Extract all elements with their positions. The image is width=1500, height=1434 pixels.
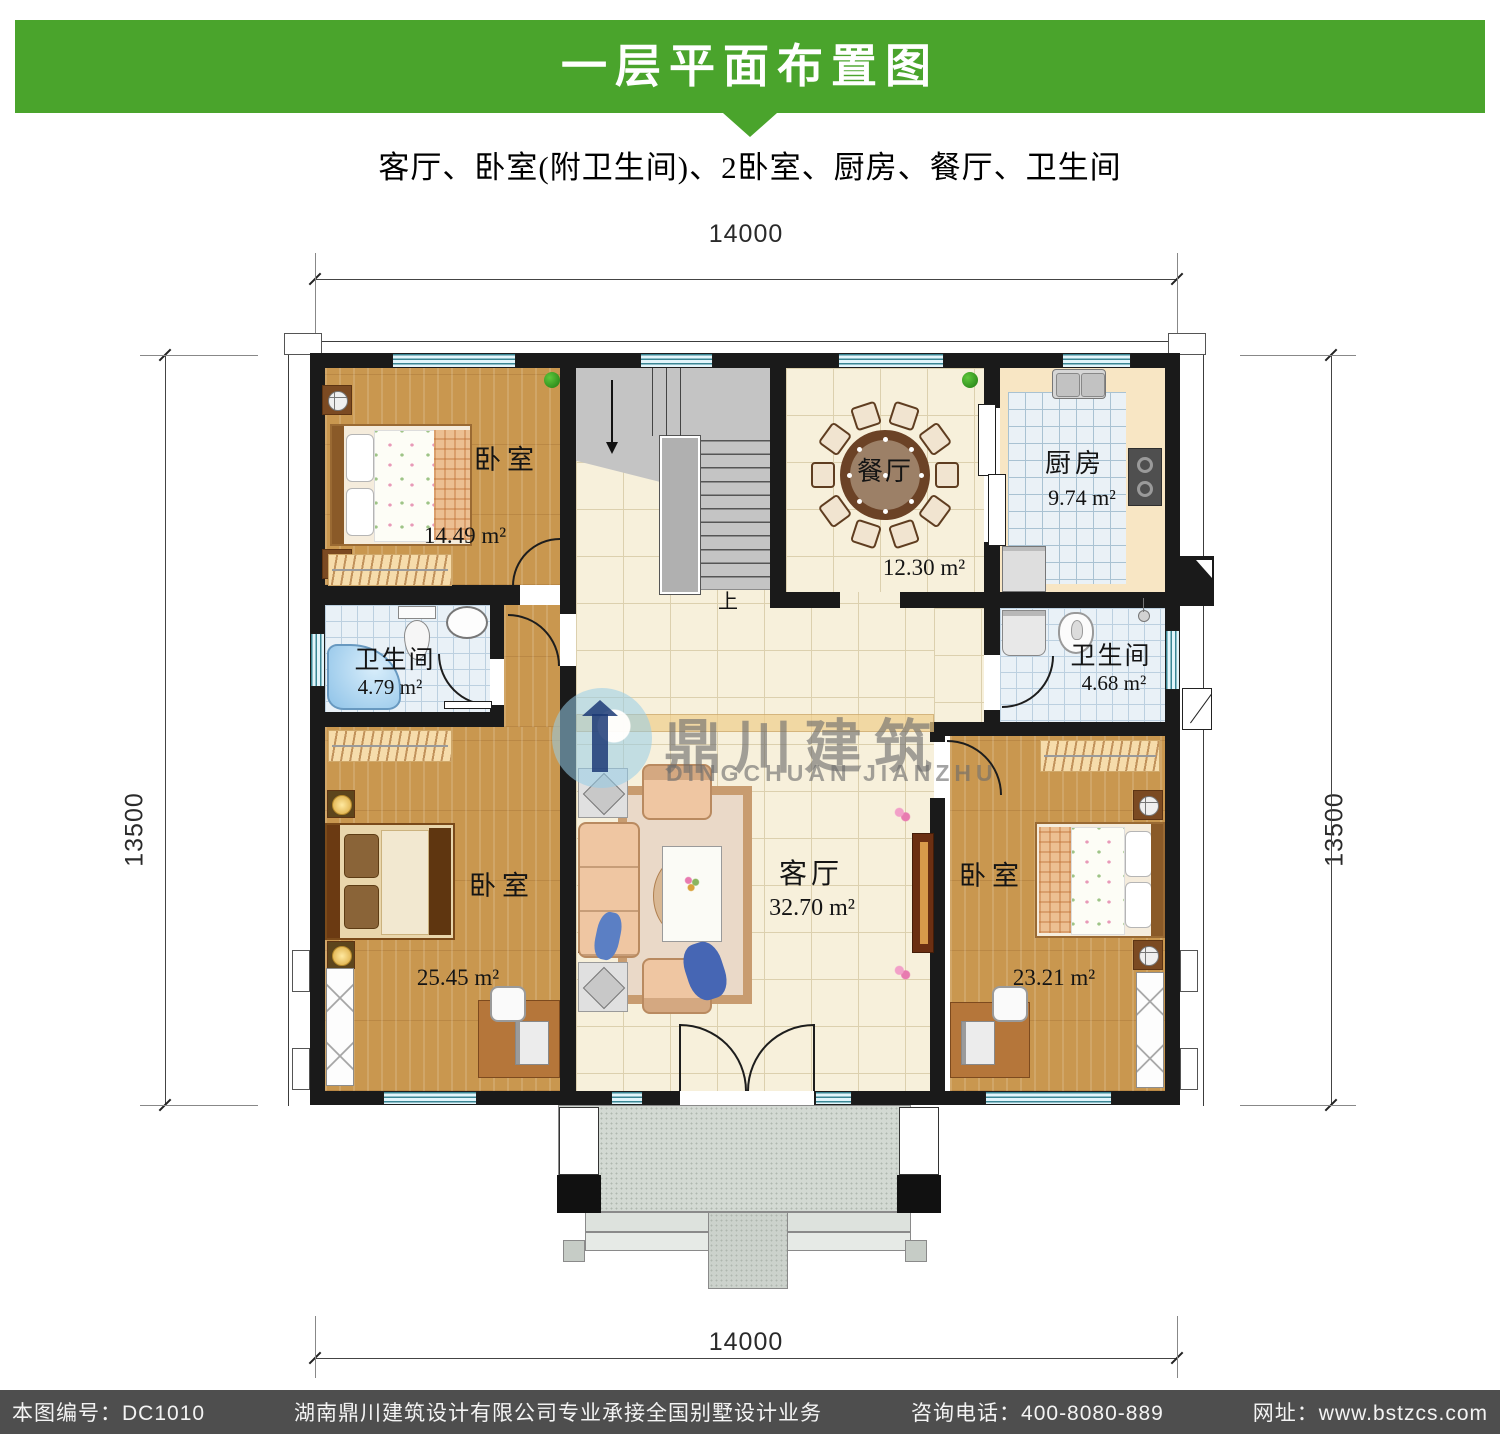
bed-pillow <box>1125 831 1152 877</box>
room-label-bathR: 卫生间 <box>1046 644 1176 670</box>
window-stairs <box>640 353 713 368</box>
burner-icon <box>1137 457 1153 473</box>
shower-head-icon <box>1138 610 1150 622</box>
stair-flight <box>700 440 771 590</box>
washing-machine <box>1002 610 1046 656</box>
squat-toilet-drain <box>1071 620 1083 640</box>
stair-void <box>660 436 700 594</box>
door-kitchen-slider-b <box>988 474 1006 546</box>
page-title: 一层平面布置图 <box>15 20 1485 113</box>
wall-v3-dining-kitchen-a <box>984 368 1000 408</box>
pilaster <box>1180 950 1198 992</box>
bed-pillow <box>1125 882 1152 928</box>
door-kitchen-slider-a <box>978 404 996 476</box>
wall-h1-bedroomTL <box>310 585 520 605</box>
dim-ext <box>1240 1105 1356 1106</box>
room-label-bedroomTL: 卧室 <box>447 446 567 474</box>
room-area-living: 32.70 m² <box>742 896 882 921</box>
room-area-bedroomBL: 25.45 m² <box>388 966 528 990</box>
stair-rail-line <box>680 368 681 436</box>
sink-basin <box>1056 373 1080 397</box>
dim-left-label: 13500 <box>121 750 150 910</box>
porch-column-foot-left <box>563 1240 585 1262</box>
pilaster <box>1168 333 1206 355</box>
dim-ext <box>315 1316 316 1378</box>
lamp-icon <box>332 946 352 966</box>
bed-bottom-right <box>1035 822 1165 938</box>
porch-column-left <box>559 1107 599 1175</box>
nightstand <box>1133 940 1163 970</box>
title-banner: 一层平面布置图 <box>15 20 1485 113</box>
stair-arrow-stem <box>611 380 613 442</box>
toilet-tank <box>398 606 436 619</box>
fridge <box>1002 546 1046 592</box>
nightstand-lamp <box>327 941 355 969</box>
rack-rail <box>332 569 448 571</box>
footer-phone: 咨询电话：400-8080-889 <box>911 1397 1164 1427</box>
wardrobe <box>326 968 354 1086</box>
dim-right-label: 13500 <box>1321 750 1350 910</box>
wall-stub-dining <box>770 592 840 608</box>
dim-ext <box>1240 355 1356 356</box>
porch-column-foot-right <box>905 1240 927 1262</box>
watermark-logo-column <box>592 714 608 772</box>
wall-exterior-right <box>1165 353 1180 1105</box>
dining-chair <box>935 462 959 488</box>
window-kitchen <box>1062 353 1131 368</box>
room-label-bedroomBR: 卧室 <box>932 862 1052 890</box>
footer-bar: 本图编号：DC1010 湖南鼎川建筑设计有限公司专业承接全国别墅设计业务 咨询电… <box>0 1390 1500 1434</box>
room-label-kitchen: 厨房 <box>1015 450 1135 477</box>
end-table <box>578 962 628 1012</box>
window-bedroomTL <box>392 353 516 368</box>
room-label-bedroomBL: 卧室 <box>442 872 562 900</box>
bed-pillow <box>346 488 374 536</box>
kitchen-sink <box>1052 369 1106 399</box>
footer-website: 网址：www.bstzcs.com <box>1253 1397 1488 1427</box>
end-table-top <box>583 967 625 1009</box>
stair-rail-line <box>666 368 667 436</box>
room-area-bathL: 4.79 m² <box>323 676 457 698</box>
nightstand-lamp <box>327 790 355 818</box>
plant-icon <box>962 372 978 388</box>
sink-oval <box>446 606 488 639</box>
wall-h4-bathR <box>930 722 1165 736</box>
rack-rail <box>1044 755 1156 757</box>
watermark-en: DINGCHUAN JIANZHU <box>666 760 998 787</box>
bed-blanket <box>381 830 429 935</box>
bed-headboard <box>1151 824 1163 936</box>
porch-column-right-base <box>897 1175 941 1213</box>
pilaster <box>292 1048 310 1090</box>
room-area-kitchen: 9.74 m² <box>1017 486 1147 509</box>
flower-icon <box>893 964 911 982</box>
stair-rail-line <box>652 368 653 436</box>
window-hall-right <box>815 1091 852 1105</box>
dining-chair <box>811 462 835 488</box>
dim-right-line <box>1331 355 1332 1105</box>
porch-column-right <box>899 1107 939 1175</box>
dim-bottom-line <box>315 1358 1177 1359</box>
room-area-bedroomTL: 14.49 m² <box>395 524 535 548</box>
room-area-bedroomBR: 23.21 m² <box>984 966 1124 990</box>
lamp-icon <box>1139 796 1159 816</box>
nightstand <box>322 385 352 415</box>
bed-headboard <box>332 426 344 544</box>
wall-v1-upper <box>560 368 576 614</box>
wall-h3-kitchen <box>900 592 1165 608</box>
dim-ext <box>140 355 258 356</box>
wall-v3-bathR-a <box>984 608 1000 655</box>
window-bedroomBL <box>383 1091 477 1105</box>
desk-chair <box>490 986 526 1022</box>
door-bathL-panel <box>444 701 492 709</box>
nightstand <box>1133 790 1163 820</box>
lamp-icon <box>332 795 352 815</box>
bed-pillow <box>344 885 379 929</box>
wall-stair-right <box>770 368 786 608</box>
porch-column-left-base <box>557 1175 601 1213</box>
watermark-logo <box>552 688 652 788</box>
room-area-bathR: 4.68 m² <box>1049 672 1179 694</box>
dim-ext <box>140 1105 258 1106</box>
room-label-living: 客厅 <box>751 860 871 889</box>
tv-icon <box>920 842 928 944</box>
computer-monitor-icon <box>515 1021 549 1065</box>
dim-left-line <box>165 355 166 1105</box>
porch-slab <box>558 1105 911 1212</box>
wall-v3-bathR-b <box>984 710 1000 722</box>
dim-top-line <box>315 279 1177 280</box>
sink-basin <box>1081 373 1105 397</box>
pilaster <box>292 950 310 992</box>
clothes-rack <box>328 730 452 762</box>
subtitle: 客厅、卧室(附卫生间)、2卧室、厨房、餐厅、卫生间 <box>0 142 1500 187</box>
vase-flowers-icon <box>683 875 701 893</box>
clothes-rack <box>328 554 452 586</box>
shower-hose <box>1143 598 1144 612</box>
stair-up-label: 上 <box>712 592 744 613</box>
lamp-icon <box>1139 946 1159 966</box>
window-hall-left <box>611 1091 643 1105</box>
floor-plan-page: 一层平面布置图 客厅、卧室(附卫生间)、2卧室、厨房、餐厅、卫生间 14000 … <box>0 0 1500 1434</box>
bed-bottom-left <box>325 823 455 940</box>
dim-bottom-label: 14000 <box>646 1328 846 1357</box>
footer-company: 湖南鼎川建筑设计有限公司专业承接全国别墅设计业务 <box>294 1397 822 1427</box>
room-area-dining: 12.30 m² <box>854 556 994 580</box>
bed-pillow <box>346 434 374 482</box>
bed-duvet-floral <box>1071 827 1125 935</box>
wall-v2-bathL-a <box>490 605 504 659</box>
pilaster <box>1180 1048 1198 1090</box>
tv-cabinet-right <box>912 833 934 953</box>
banner-pointer <box>723 113 777 137</box>
wall-h2-bathL <box>310 712 504 727</box>
stair-arrow-head <box>606 442 618 454</box>
coffee-table <box>662 846 722 942</box>
dim-ext <box>1177 1316 1178 1378</box>
bed-pillow <box>344 834 379 878</box>
flue-lower <box>1182 688 1212 730</box>
wall-v2-bathL-b <box>490 705 504 713</box>
desk-chair <box>992 986 1028 1022</box>
bed-headboard <box>327 825 340 938</box>
lamp-icon <box>328 391 348 411</box>
watermark-logo-roof <box>582 700 618 716</box>
computer-monitor-icon <box>961 1021 995 1065</box>
window-bedroomBR <box>985 1091 1112 1105</box>
window-dining <box>838 353 944 368</box>
rack-rail <box>332 745 448 747</box>
room-label-bathL: 卫生间 <box>325 648 465 674</box>
plant-icon <box>544 372 560 388</box>
clothes-rack <box>1040 740 1160 772</box>
wardrobe <box>1136 972 1164 1088</box>
porch-walk-pad <box>708 1212 788 1289</box>
flower-icon <box>893 806 911 824</box>
dim-top-label: 14000 <box>646 220 846 249</box>
room-label-dining: 餐厅 <box>840 458 930 485</box>
pilaster <box>284 333 322 355</box>
flue-upper-notch <box>1196 560 1212 578</box>
footer-drawing-no: 本图编号：DC1010 <box>12 1397 205 1427</box>
wall-exterior-left <box>310 353 325 1105</box>
